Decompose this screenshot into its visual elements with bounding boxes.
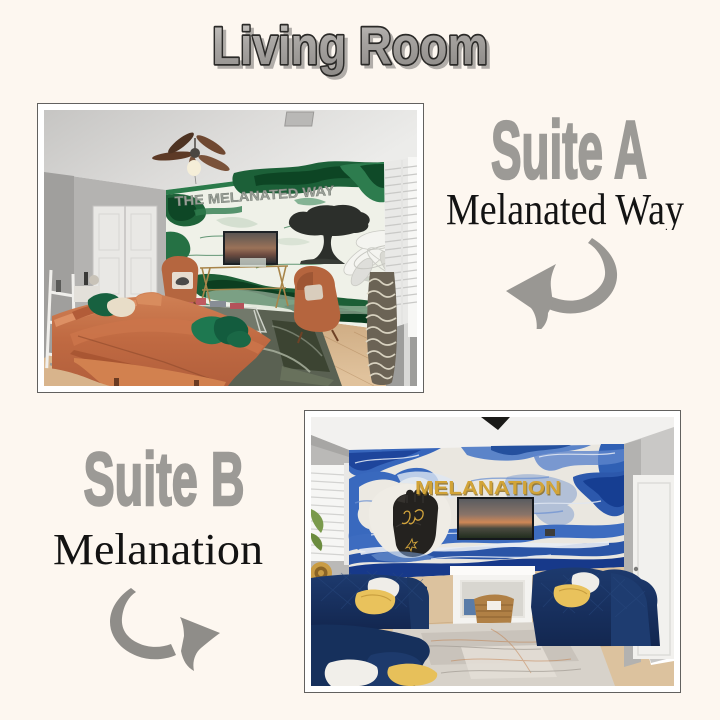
svg-text:Melanated Way: Melanated Way — [446, 185, 684, 230]
svg-text:Suite A: Suite A — [491, 105, 647, 196]
svg-text:Suite B: Suite B — [84, 437, 245, 521]
svg-text:Living Room: Living Room — [212, 17, 488, 76]
svg-text:MELANATION: MELANATION — [415, 478, 561, 498]
svg-text:Melanation: Melanation — [53, 525, 263, 574]
